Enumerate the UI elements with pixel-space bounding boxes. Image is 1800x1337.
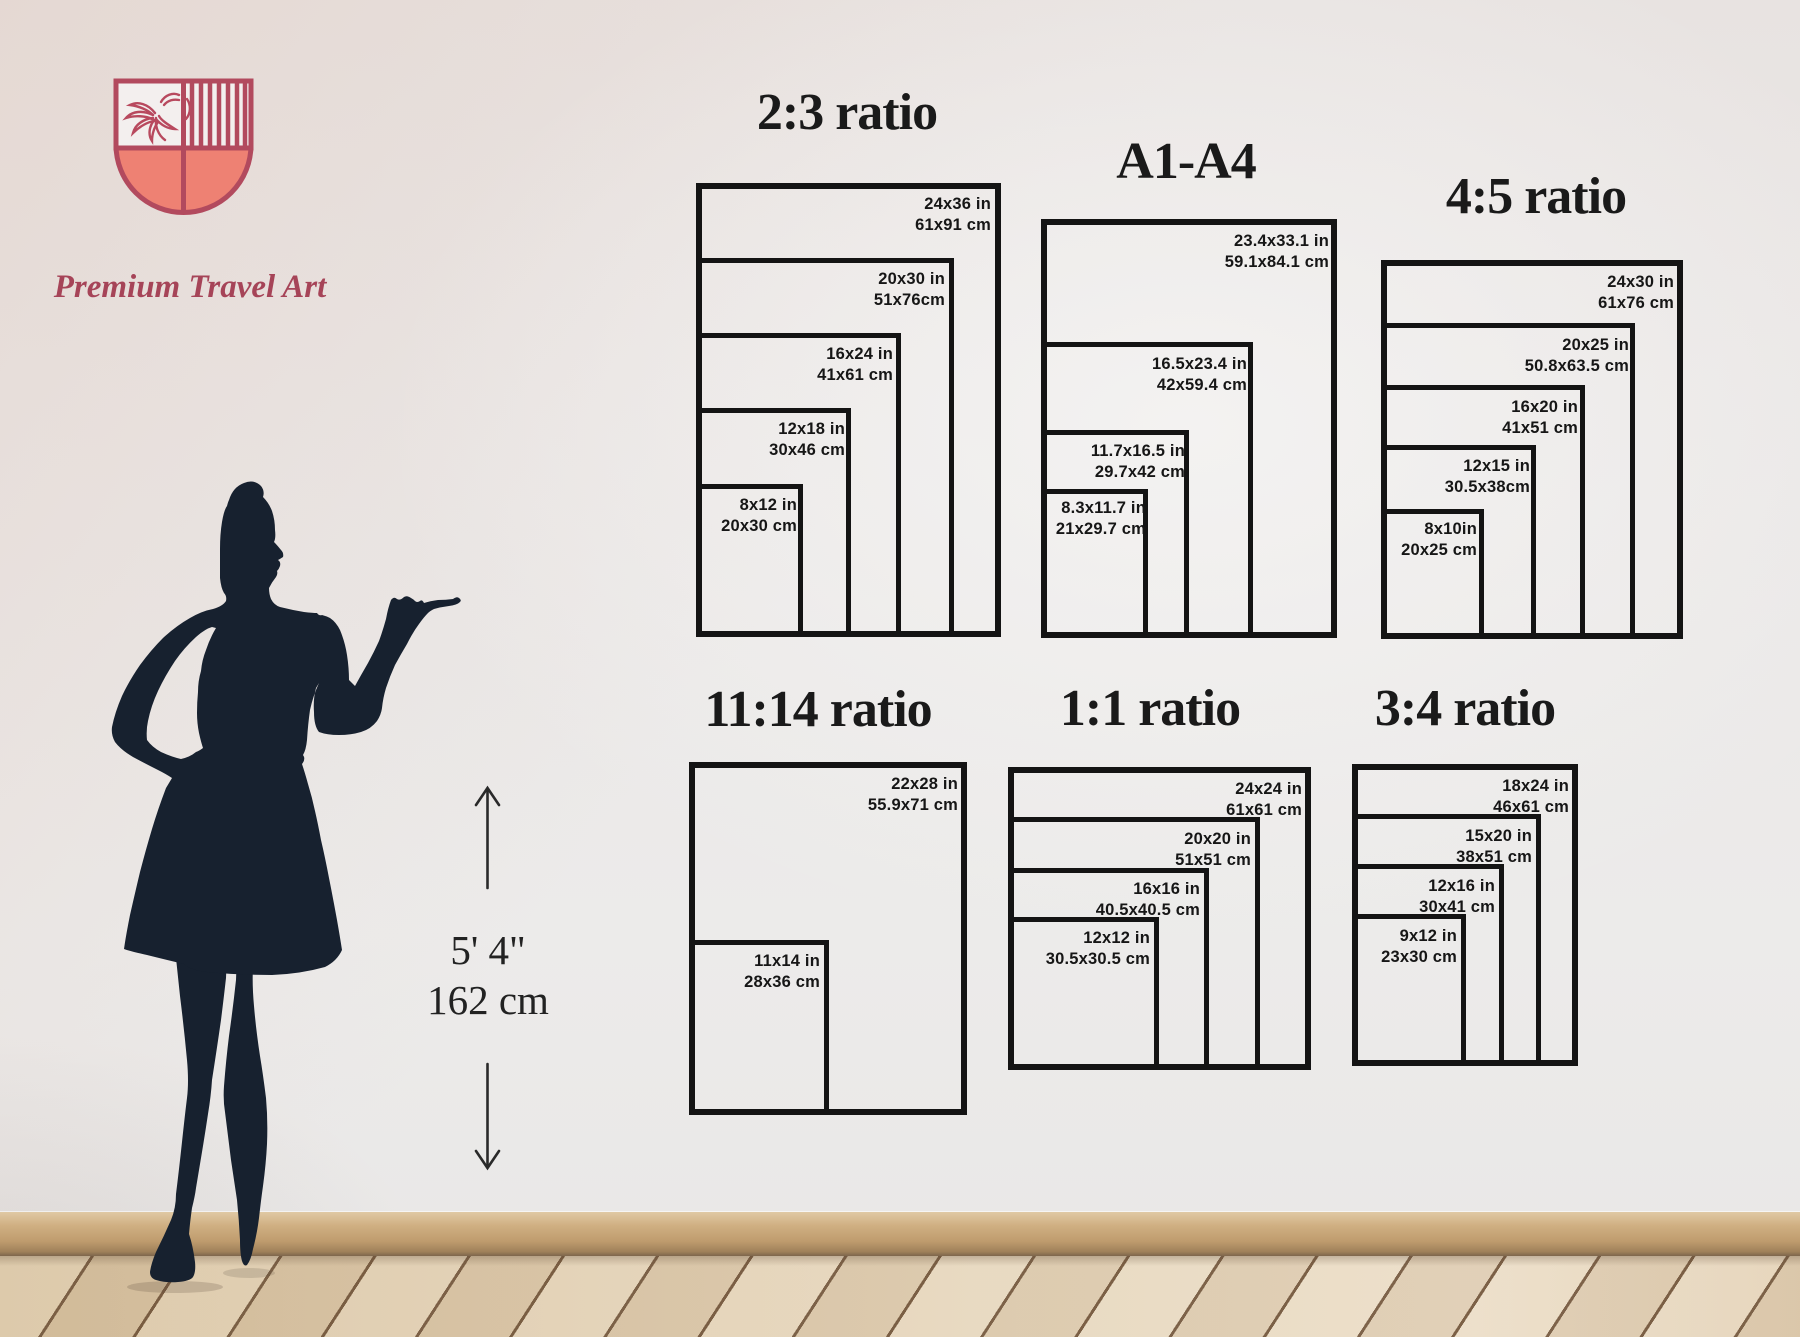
- svg-text:Premium Travel Art: Premium Travel Art: [53, 269, 327, 305]
